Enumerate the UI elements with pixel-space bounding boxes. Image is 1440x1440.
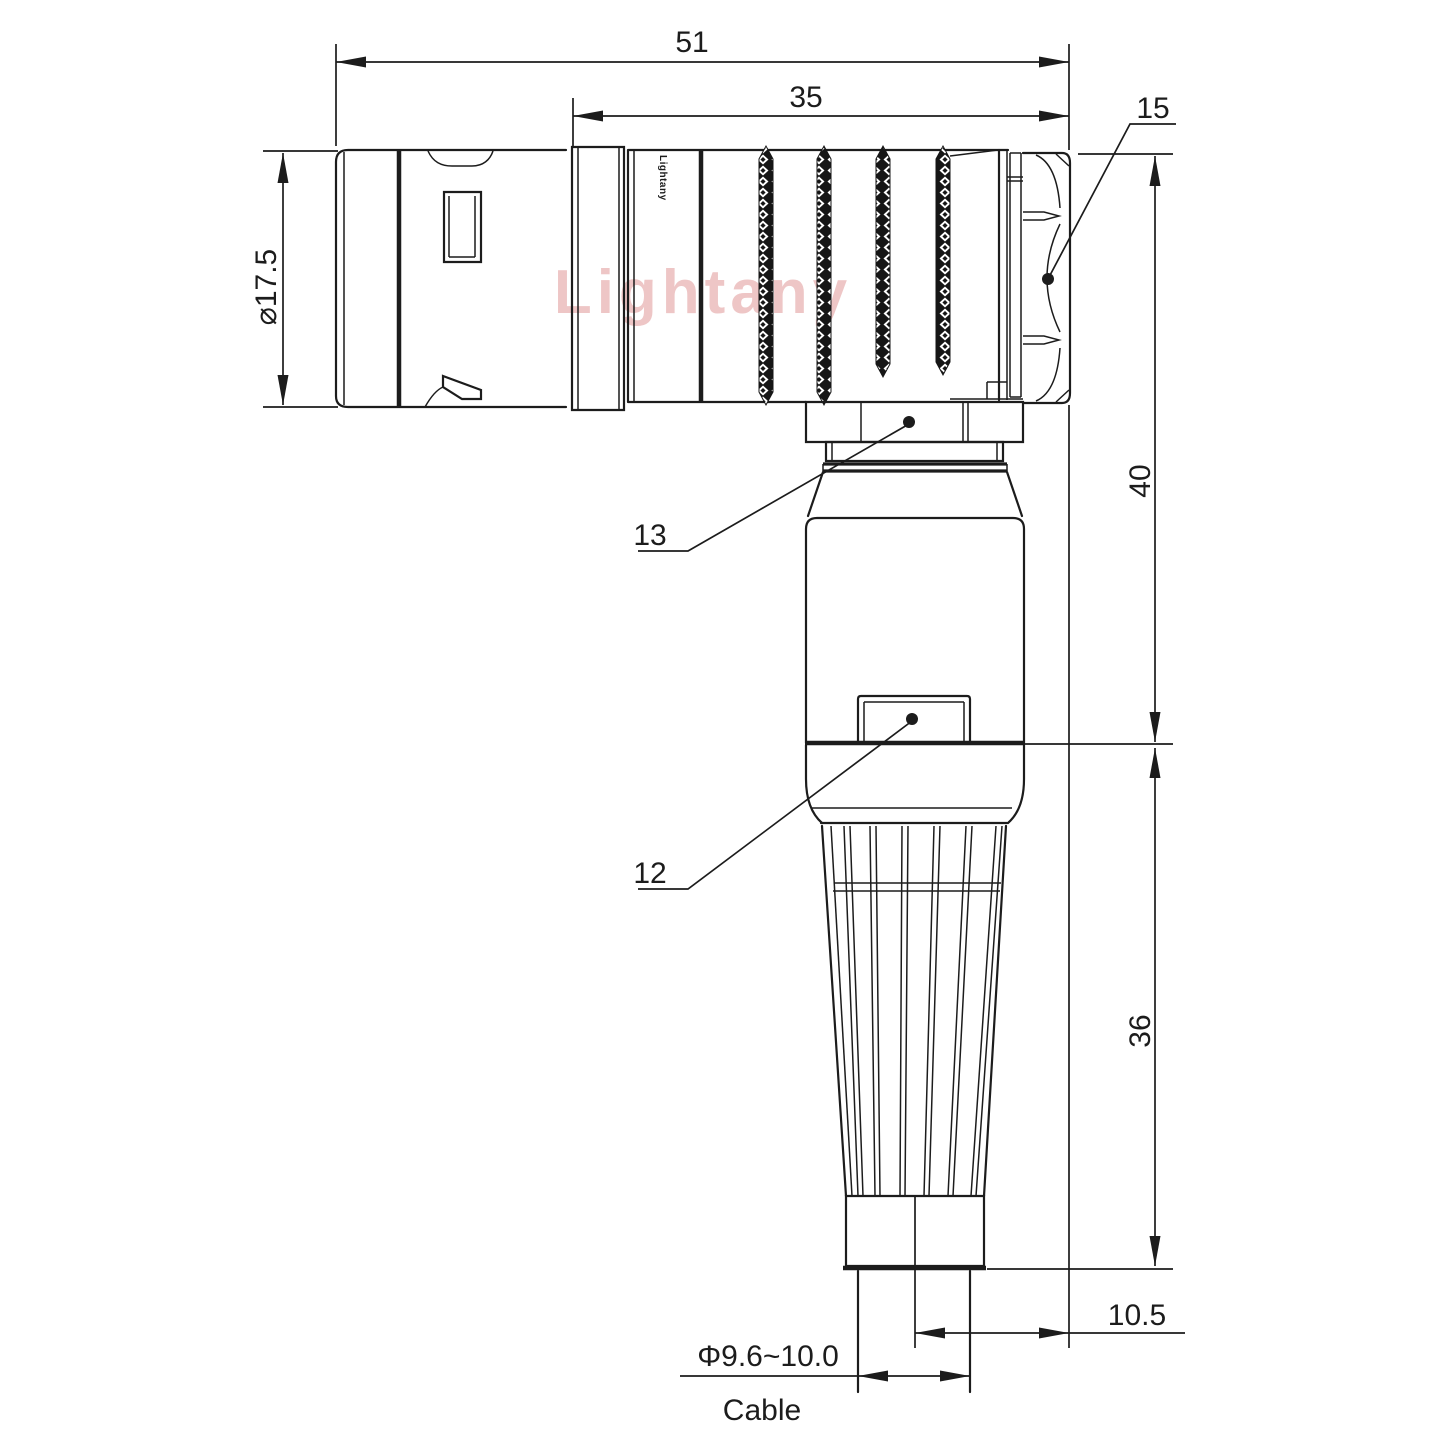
dimension-17-5: ⌀17.5: [250, 151, 338, 407]
elbow-collar: [806, 402, 1023, 516]
dim-36-label: 36: [1124, 1014, 1157, 1047]
dimension-36: 36: [987, 744, 1173, 1269]
dim-cable-diameter-label: Φ9.6~10.0: [697, 1340, 839, 1373]
dimension-35: 35: [573, 81, 1069, 146]
callout-13-label: 13: [633, 519, 666, 552]
callout-13: 13: [633, 416, 915, 552]
strain-relief-boot: [806, 745, 1024, 1268]
dimension-10-5: 10.5: [915, 405, 1185, 1348]
cable-label: Cable: [723, 1394, 801, 1427]
dim-51-label: 51: [675, 26, 708, 59]
connector-drawing: Lightany Lightany: [0, 0, 1440, 1440]
brand-marking-text: Lightany: [657, 155, 668, 201]
dimension-51: 51: [336, 26, 1069, 150]
boot-fingers: [822, 826, 1006, 1196]
plug-front-shell: [336, 150, 566, 407]
dimension-cable: Φ9.6~10.0 Cable: [680, 1340, 970, 1427]
latch-tab: [443, 376, 481, 399]
callout-12-label: 12: [633, 857, 666, 890]
dim-40-label: 40: [1124, 464, 1157, 497]
dim-35-label: 35: [789, 81, 822, 114]
callout-15: 15: [1042, 92, 1176, 285]
dim-10-5-label: 10.5: [1108, 1299, 1166, 1332]
callout-15-label: 15: [1136, 92, 1169, 125]
dimension-40: 40: [1078, 154, 1173, 742]
dim-17-5-label: ⌀17.5: [250, 249, 283, 325]
callout-12: 12: [633, 713, 918, 890]
vertical-body: [805, 518, 1025, 743]
technical-drawing-canvas: Lightany Lightany: [0, 0, 1440, 1440]
